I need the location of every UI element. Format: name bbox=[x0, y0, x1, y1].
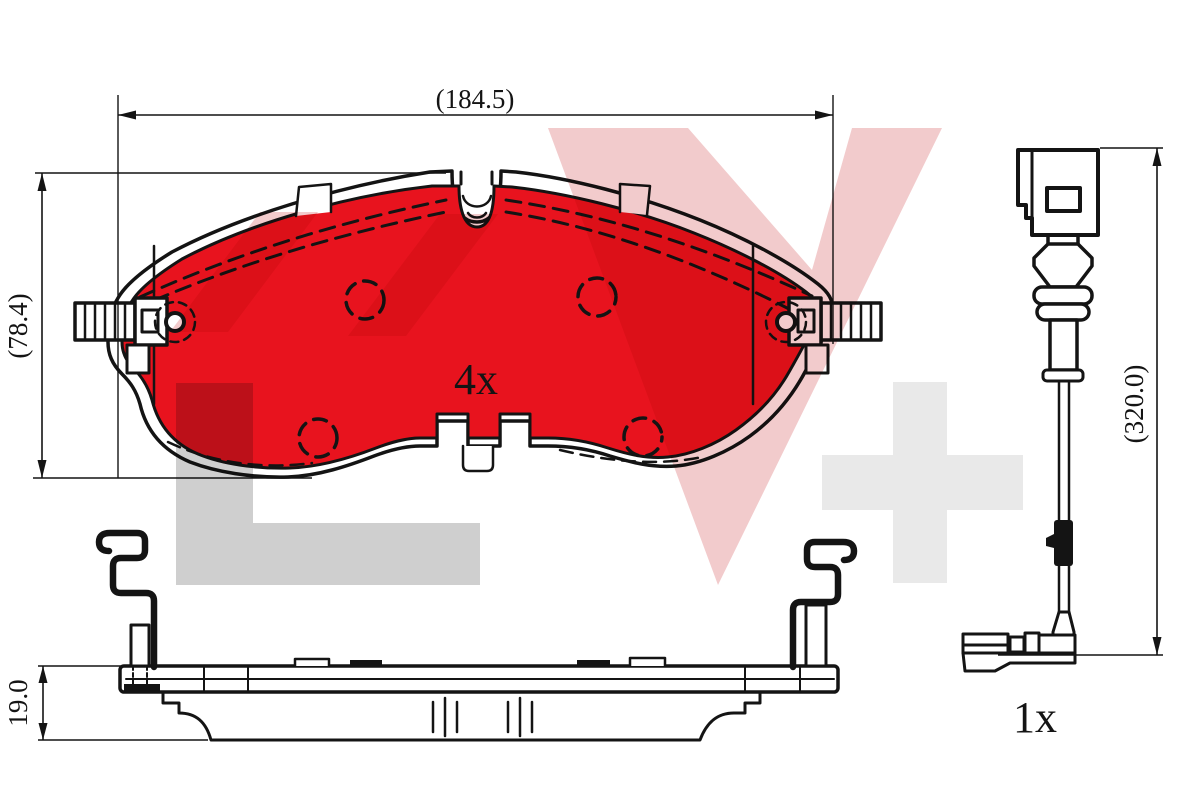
sensor-wire-sleeve-tab bbox=[1046, 534, 1054, 548]
sensor-wire-sleeve bbox=[1054, 520, 1073, 566]
sensor-boot-ring bbox=[1034, 287, 1092, 304]
arrowhead bbox=[39, 723, 48, 740]
side-pin-right bbox=[806, 605, 826, 666]
side-pin-foot bbox=[124, 684, 160, 692]
sensor-quantity-label: 1x bbox=[1013, 693, 1057, 742]
side-friction-profile bbox=[163, 692, 760, 740]
pad-thickness-dimension-label: 19.0 bbox=[3, 679, 33, 726]
sensor-boot-ring bbox=[1037, 304, 1089, 320]
bottom-center-tab bbox=[463, 446, 493, 471]
sensor-length-dimension-label: (320.0) bbox=[1119, 365, 1149, 444]
sensor-boot bbox=[1034, 244, 1092, 287]
sensor-connector-latch-hole bbox=[1047, 188, 1080, 211]
notch-inner-arc-1 bbox=[463, 196, 491, 207]
sensor-boot-cylinder bbox=[1050, 320, 1077, 370]
arrowhead bbox=[815, 111, 833, 120]
arrowhead bbox=[38, 173, 47, 191]
shim-bump-outline bbox=[630, 658, 665, 666]
watermark-letter-e-stem bbox=[176, 383, 253, 585]
side-pin-left bbox=[131, 625, 149, 666]
arrowhead bbox=[1153, 148, 1162, 166]
watermark-letter-e-arm bbox=[253, 523, 480, 585]
arrowhead bbox=[118, 111, 136, 120]
pad-height-dimension-label: (78.4) bbox=[3, 293, 33, 358]
wear-sensor-view bbox=[963, 150, 1098, 671]
sensor-strain-relief bbox=[1053, 612, 1074, 636]
top-tab-left bbox=[296, 184, 331, 216]
arrowhead bbox=[38, 460, 47, 478]
shim-bump-filled bbox=[350, 660, 382, 666]
shim-bump-outline bbox=[295, 659, 329, 666]
pad-quantity-label: 4x bbox=[454, 355, 498, 404]
pad-width-dimension-label: (184.5) bbox=[436, 84, 515, 114]
sensor-tip-bracket bbox=[963, 633, 1075, 671]
shim-bump-filled bbox=[577, 660, 610, 666]
watermark-plus-horizontal bbox=[822, 455, 1023, 510]
arrowhead bbox=[39, 666, 48, 683]
sensor-boot-flange bbox=[1043, 370, 1083, 381]
brake-pad-drawing: (184.5) (78.4) 19.0 (320.0) 4x 1x bbox=[0, 0, 1200, 799]
arrowhead bbox=[1153, 637, 1162, 655]
technical-drawing-page: (184.5) (78.4) 19.0 (320.0) 4x 1x bbox=[0, 0, 1200, 799]
